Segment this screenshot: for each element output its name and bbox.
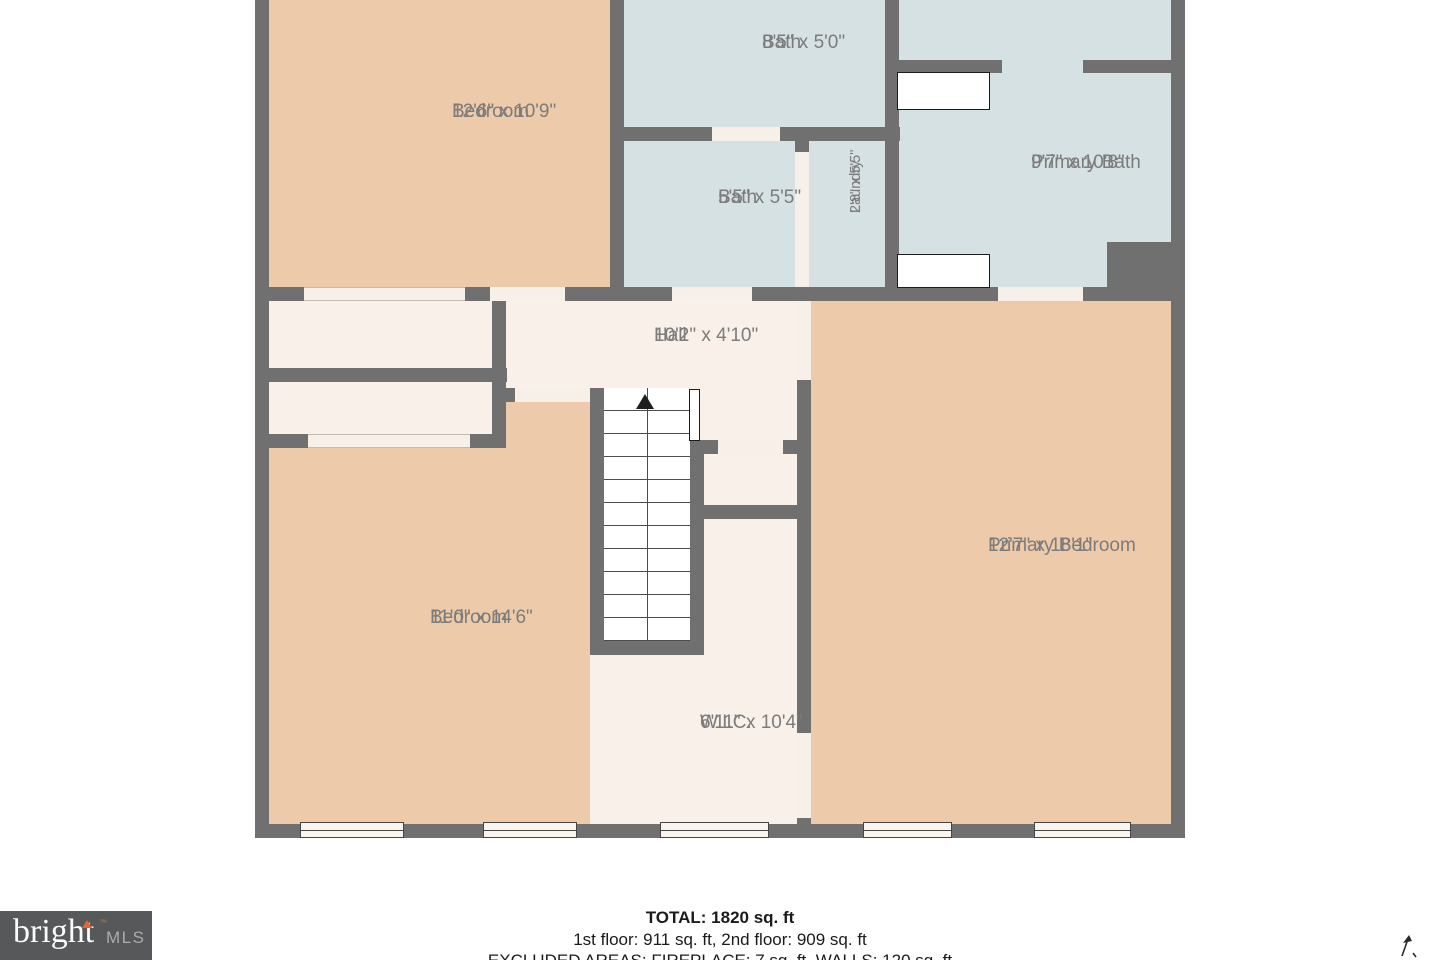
wall <box>465 287 490 301</box>
door-opening <box>672 287 752 301</box>
logo-arrow-icon <box>82 920 92 928</box>
door-opening <box>712 127 780 141</box>
staircase <box>604 388 690 641</box>
room-dims: 10'2" x 4'10" <box>654 322 758 350</box>
floor-plan-page: Bedroom 12'6" x 10'9" Bath 8'5" x 5'0" B… <box>0 0 1440 960</box>
stairs-direction-arrow <box>636 394 654 409</box>
room-bedroom-bottomleft <box>268 448 590 825</box>
room-dims: 9'7" x 10'8" <box>1031 149 1125 177</box>
room-bedroom-topleft <box>268 0 610 301</box>
door-opening <box>797 733 811 818</box>
window <box>483 822 577 838</box>
closet-door-opening <box>308 434 470 448</box>
wall <box>268 287 304 301</box>
bright-mls-logo: bright ™ MLS <box>0 911 152 960</box>
area-summary: TOTAL: 1820 sq. ft 1st floor: 911 sq. ft… <box>0 907 1440 960</box>
closet-door-opening <box>304 287 465 301</box>
floor-areas-text: 1st floor: 911 sq. ft, 2nd floor: 909 sq… <box>0 929 1440 951</box>
door-opening <box>718 440 783 454</box>
window <box>1034 822 1131 838</box>
room-primary-bedroom <box>811 301 1171 825</box>
door-opening <box>490 287 565 301</box>
room-bath-middle <box>624 141 795 301</box>
wall <box>1171 0 1185 838</box>
door-leaf <box>689 389 700 441</box>
north-arrow-icon <box>1388 928 1428 960</box>
wall <box>470 434 506 448</box>
wall <box>590 641 704 655</box>
second-floor-plan: Bedroom 12'6" x 10'9" Bath 8'5" x 5'0" B… <box>255 0 1185 838</box>
wall <box>795 138 809 152</box>
bath-fixture <box>897 254 990 288</box>
wall <box>492 388 515 402</box>
window <box>660 822 769 838</box>
bath-fixture <box>897 72 990 110</box>
room-dims: 12'6" x 10'9" <box>452 98 556 126</box>
window <box>300 822 404 838</box>
wall <box>752 287 900 301</box>
hall-landing <box>690 402 797 519</box>
logo-trademark: ™ <box>99 918 107 927</box>
logo-mls-text: MLS <box>106 928 145 948</box>
room-dims: 5'5" x 5'5" <box>718 184 801 212</box>
wall <box>255 0 269 838</box>
room-dims: 8'5" x 5'0" <box>762 29 845 57</box>
logo-brand-text: bright <box>13 913 94 951</box>
wall <box>268 368 507 382</box>
room-dims: 12'7" x 18'1" <box>988 532 1092 560</box>
wall <box>610 0 624 301</box>
door-opening <box>797 301 811 380</box>
wall <box>565 287 672 301</box>
total-area-text: TOTAL: 1820 sq. ft <box>0 907 1440 929</box>
room-bath-top <box>624 0 899 141</box>
wall <box>268 434 308 448</box>
wall <box>797 818 811 825</box>
excluded-areas-text: EXCLUDED AREAS: FIREPLACE: 7 sq. ft, WAL… <box>0 950 1440 960</box>
wall <box>690 505 797 519</box>
wall <box>1083 60 1171 73</box>
laundry-door-opening <box>795 152 809 287</box>
wall <box>900 287 998 301</box>
chimney-block <box>1107 242 1171 301</box>
window <box>863 822 952 838</box>
door-opening <box>515 388 590 402</box>
wall <box>690 440 704 655</box>
room-dims: 6'11" x 10'4" <box>700 709 803 737</box>
door-opening <box>998 287 1083 301</box>
wall <box>690 440 718 454</box>
room-dims: 2'8" x 5'5" <box>846 150 866 213</box>
room-dims: 11'0" x 14'6" <box>430 604 533 632</box>
wall <box>797 380 811 733</box>
room-bedroom-bottomleft-corner <box>506 402 590 448</box>
wall <box>590 388 604 655</box>
wall <box>610 127 712 141</box>
wall <box>492 287 506 448</box>
